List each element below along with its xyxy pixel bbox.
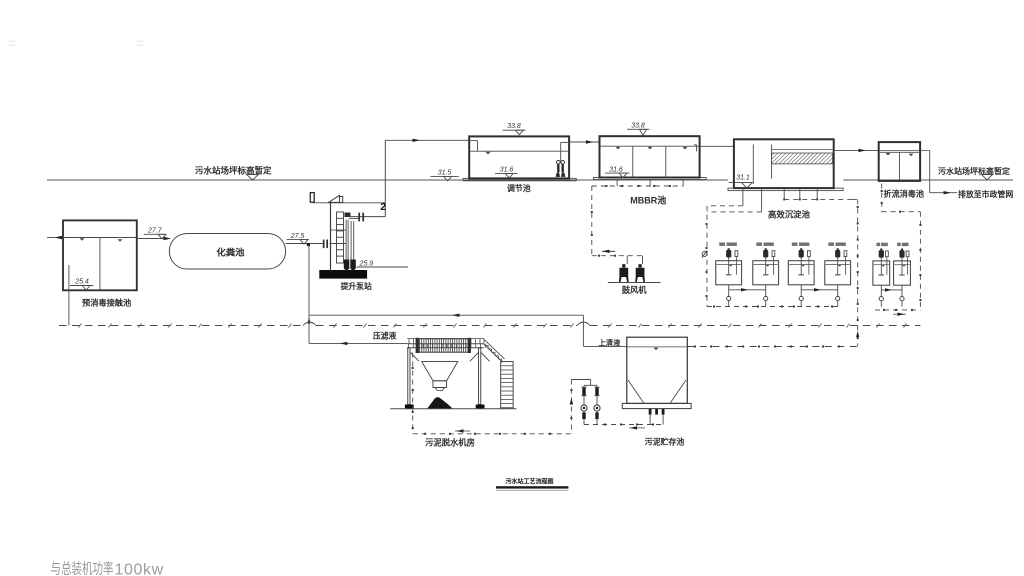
svg-text:25.9: 25.9 <box>359 260 374 267</box>
svg-text:污水站场坪标高暂定: 污水站场坪标高暂定 <box>938 166 1010 176</box>
svg-text:与总装机功率: 与总装机功率 <box>51 560 114 576</box>
svg-text:上清液: 上清液 <box>599 339 622 348</box>
svg-text:27.7: 27.7 <box>147 228 163 235</box>
svg-text:33.8: 33.8 <box>507 123 521 130</box>
svg-text:2: 2 <box>380 201 386 213</box>
svg-text:预消毒接触池: 预消毒接触池 <box>82 298 132 308</box>
svg-text:污水站工艺流程图: 污水站工艺流程图 <box>506 478 554 486</box>
svg-text:MBBR池: MBBR池 <box>630 195 666 206</box>
svg-text:25.4: 25.4 <box>74 279 89 286</box>
svg-text:压滤液: 压滤液 <box>373 331 397 341</box>
svg-text:化粪池: 化粪池 <box>217 247 246 258</box>
svg-text:污水站场坪标高暂定: 污水站场坪标高暂定 <box>195 166 272 176</box>
svg-text:折流消毒池: 折流消毒池 <box>884 189 924 199</box>
svg-text:31.6: 31.6 <box>500 167 514 174</box>
svg-text:调节池: 调节池 <box>507 183 531 193</box>
svg-text:排放至市政管网: 排放至市政管网 <box>958 189 1013 199</box>
svg-text:污泥脱水机房: 污泥脱水机房 <box>425 438 475 448</box>
svg-text:100kw: 100kw <box>115 562 164 576</box>
svg-text:提升泵站: 提升泵站 <box>341 281 372 291</box>
svg-text:鼓风机: 鼓风机 <box>622 285 648 295</box>
svg-text:33.8: 33.8 <box>631 122 645 129</box>
svg-text:高效沉淀池: 高效沉淀池 <box>768 210 810 220</box>
svg-text:31.6: 31.6 <box>609 166 623 173</box>
svg-text:污泥贮存池: 污泥贮存池 <box>645 437 685 447</box>
svg-text:31.5: 31.5 <box>438 170 452 177</box>
svg-text:31.1: 31.1 <box>736 174 750 181</box>
svg-text:27.5: 27.5 <box>290 233 305 240</box>
